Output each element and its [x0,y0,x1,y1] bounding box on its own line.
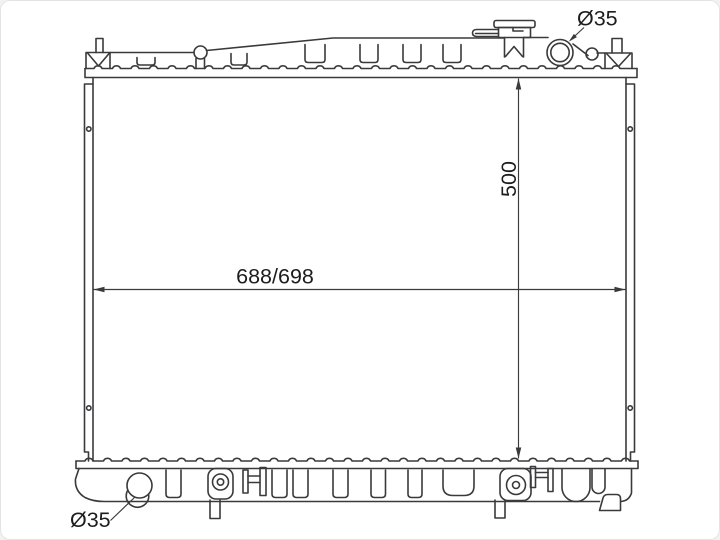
width-dimension-label: 688/698 [236,265,314,289]
bottom-port-callout: Ø35 [70,498,135,533]
left-fitting-post-a [243,470,248,493]
bottom-slot-4 [333,470,348,498]
right-mount-pin [612,39,622,54]
drawing-svg: 688/698 500 Ø35 Ø35 [0,0,720,540]
right-bracket-tab [495,500,505,518]
top-tank-slot-1 [231,54,247,66]
left-bolt-bracket [208,469,233,519]
bottom-tank-left-outline [75,469,599,502]
filler-cap-flange [494,21,535,28]
top-port-inner-circle [551,43,569,61]
dimensions: 688/698 500 Ø35 Ø35 [70,7,626,533]
left-bolt-outer [213,474,229,490]
right-channel-hole-upper [628,127,632,131]
core [85,78,635,462]
left-channel-hole-lower [87,406,91,410]
bottom-slot-5 [371,470,386,498]
right-fitting-post-a [531,467,536,488]
right-side-channel [626,84,635,461]
top-port-callout: Ø35 [569,7,618,42]
right-fitting-rod [536,473,549,478]
bottom-pocket [443,470,474,496]
top-tank-slot-4 [403,45,421,63]
outlet-pipe-front-circle [127,473,152,498]
top-header-teeth [85,66,637,69]
top-tank-bracket-small [137,58,155,66]
filler-cap-body [499,28,531,38]
left-fitting-rod [248,476,260,483]
top-small-boss-circle [586,48,598,60]
overflow-tube [473,30,499,37]
left-side-channel [85,84,94,461]
bottom-header-teeth [76,458,638,461]
bottom-slot-3 [293,470,308,498]
width-dimension: 688/698 [94,265,626,293]
left-mount-pin [96,39,103,53]
top-tank-slope-edge [207,38,505,51]
right-channel-hole-lower [628,406,632,410]
bottom-tank [75,467,631,519]
right-bolt-outer [507,476,526,495]
right-bolt-bracket [495,469,531,519]
left-channel-hole-upper [87,127,91,131]
top-tank [86,21,632,69]
bottom-header-bottom-line [76,461,638,469]
bottom-header-strip [76,458,638,468]
right-bolt-inner [513,482,520,489]
top-tank-slot-5 [443,45,461,63]
width-dim-arrow-left [94,287,105,293]
right-pipe-fitting [531,467,554,492]
left-bracket-tab [210,500,220,519]
left-pipe-fitting [243,468,266,496]
left-mount-vee [88,53,110,66]
height-dimension-label: 500 [497,161,521,197]
top-header-bottom-line [85,69,637,78]
right-bolt-bracket-outline [500,469,531,501]
bottom-tank-right-corner [621,469,632,502]
bottom-slot-6 [408,470,422,498]
top-header-strip [85,66,637,78]
filler-neck-chevron [506,47,523,57]
width-dim-arrow-right [615,287,626,293]
bottom-slot-2 [272,470,287,498]
bottom-arch-large [562,469,590,502]
right-mount-vee [607,54,631,67]
left-bolt-inner [217,479,223,485]
left-fitting-post-b [260,468,266,496]
top-tank-slot-3 [360,45,378,63]
height-dim-arrow-top [516,79,522,90]
bottom-port-label: Ø35 [70,508,111,532]
bottom-arch-small [592,469,605,494]
top-tank-slot-2 [305,45,325,63]
left-bolt-bracket-outline [208,469,233,500]
radiator-technical-drawing: 688/698 500 Ø35 Ø35 [0,0,720,540]
right-fitting-post-b [548,469,553,492]
height-dimension: 500 [497,79,521,459]
bleed-valve-circle [194,46,207,59]
top-port-label: Ø35 [577,7,618,31]
bottom-slot-1 [166,470,181,498]
bleed-valve-stem [196,59,205,69]
height-dim-arrow-bottom [516,448,522,459]
top-inlet-port [547,40,573,66]
drain-plug [600,495,621,511]
